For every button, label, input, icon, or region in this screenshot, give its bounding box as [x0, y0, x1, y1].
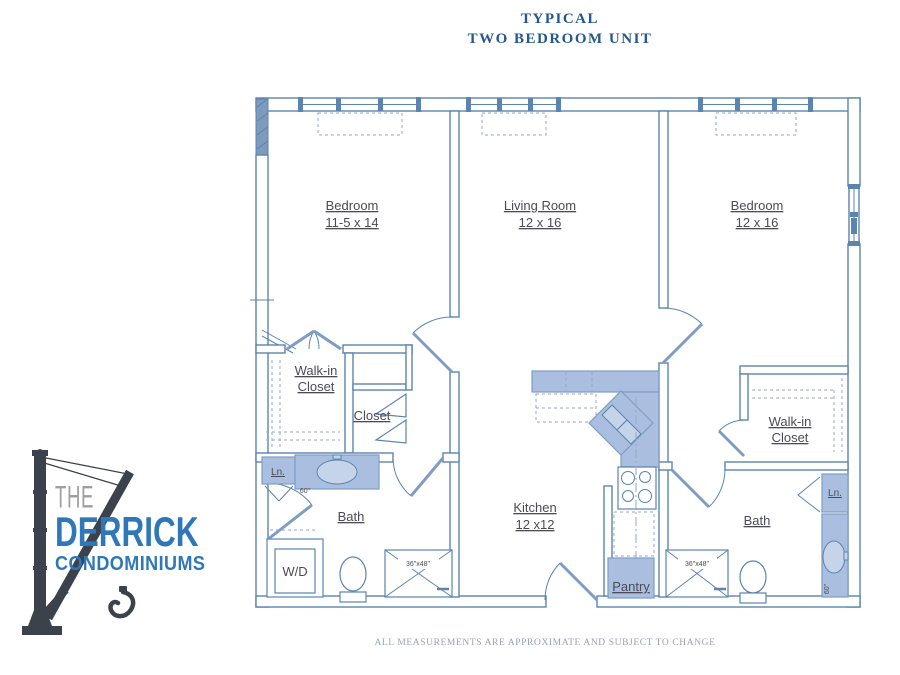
label-bedroom-right: Bedroom	[731, 198, 784, 213]
kitchen-fixtures	[532, 371, 659, 598]
label-bath-left: Bath	[338, 509, 365, 524]
window-bedroom-left	[298, 97, 421, 135]
label-living-room-dims: 12 x 16	[519, 215, 562, 230]
page: Bedroom 11-5 x 14 Living Room 12 x 16 Be…	[0, 0, 900, 675]
label-kitchen-dims: 12 x12	[515, 517, 554, 532]
kitchen-counter-top	[532, 371, 659, 392]
disclaimer-text: ALL MEASUREMENTS ARE APPROXIMATE AND SUB…	[280, 638, 810, 648]
toilet-left	[340, 557, 366, 591]
label-bedroom-left-dims: 11-5 x 14	[325, 215, 378, 230]
label-kitchen: Kitchen	[513, 500, 556, 515]
plan-title-line1: TYPICAL	[280, 9, 840, 29]
label-bath-right: Bath	[744, 513, 771, 528]
label-walkin-right-1: Walk-in	[769, 414, 812, 429]
label-washer-dryer: W/D	[282, 564, 307, 579]
label-closet: Closet	[354, 408, 391, 423]
crane-base	[22, 626, 62, 635]
label-living-room: Living Room	[504, 198, 576, 213]
refrigerator	[614, 512, 654, 556]
crane-mast	[34, 454, 46, 626]
label-shower-right-dims: 36"x48"	[685, 561, 710, 568]
window-bedroom-right	[698, 97, 813, 135]
label-walkin-left-1: Walk-in	[295, 363, 338, 378]
bath-left-fixtures	[262, 455, 452, 602]
logo-condominiums: CONDOMINIUMS	[55, 553, 205, 576]
plan-title-line2: TWO BEDROOM UNIT	[280, 29, 840, 49]
sink-right	[823, 541, 845, 573]
label-shower-left-dims: 36"x48"	[406, 561, 431, 568]
logo-derrick: DERRICK	[55, 508, 199, 556]
label-pantry: Pantry	[612, 579, 650, 594]
label-bedroom-left: Bedroom	[326, 198, 379, 213]
sink-left	[317, 460, 357, 484]
window-right-wall	[848, 184, 860, 246]
toilet-right	[740, 561, 766, 593]
label-walkin-right-2: Closet	[772, 430, 809, 445]
window-living-room	[466, 97, 561, 135]
label-linen-left: Ln.	[271, 467, 285, 478]
label-walkin-left-2: Closet	[298, 379, 335, 394]
label-vanity-right-dims: 60"	[824, 583, 831, 594]
crane-hook-icon	[111, 592, 134, 616]
label-bedroom-right-dims: 12 x 16	[736, 215, 779, 230]
outer-walls	[250, 98, 860, 607]
plan-title: TYPICAL TWO BEDROOM UNIT	[280, 9, 840, 49]
label-linen-right: Ln.	[828, 488, 842, 499]
label-vanity-left-dims: 60"	[300, 488, 311, 495]
